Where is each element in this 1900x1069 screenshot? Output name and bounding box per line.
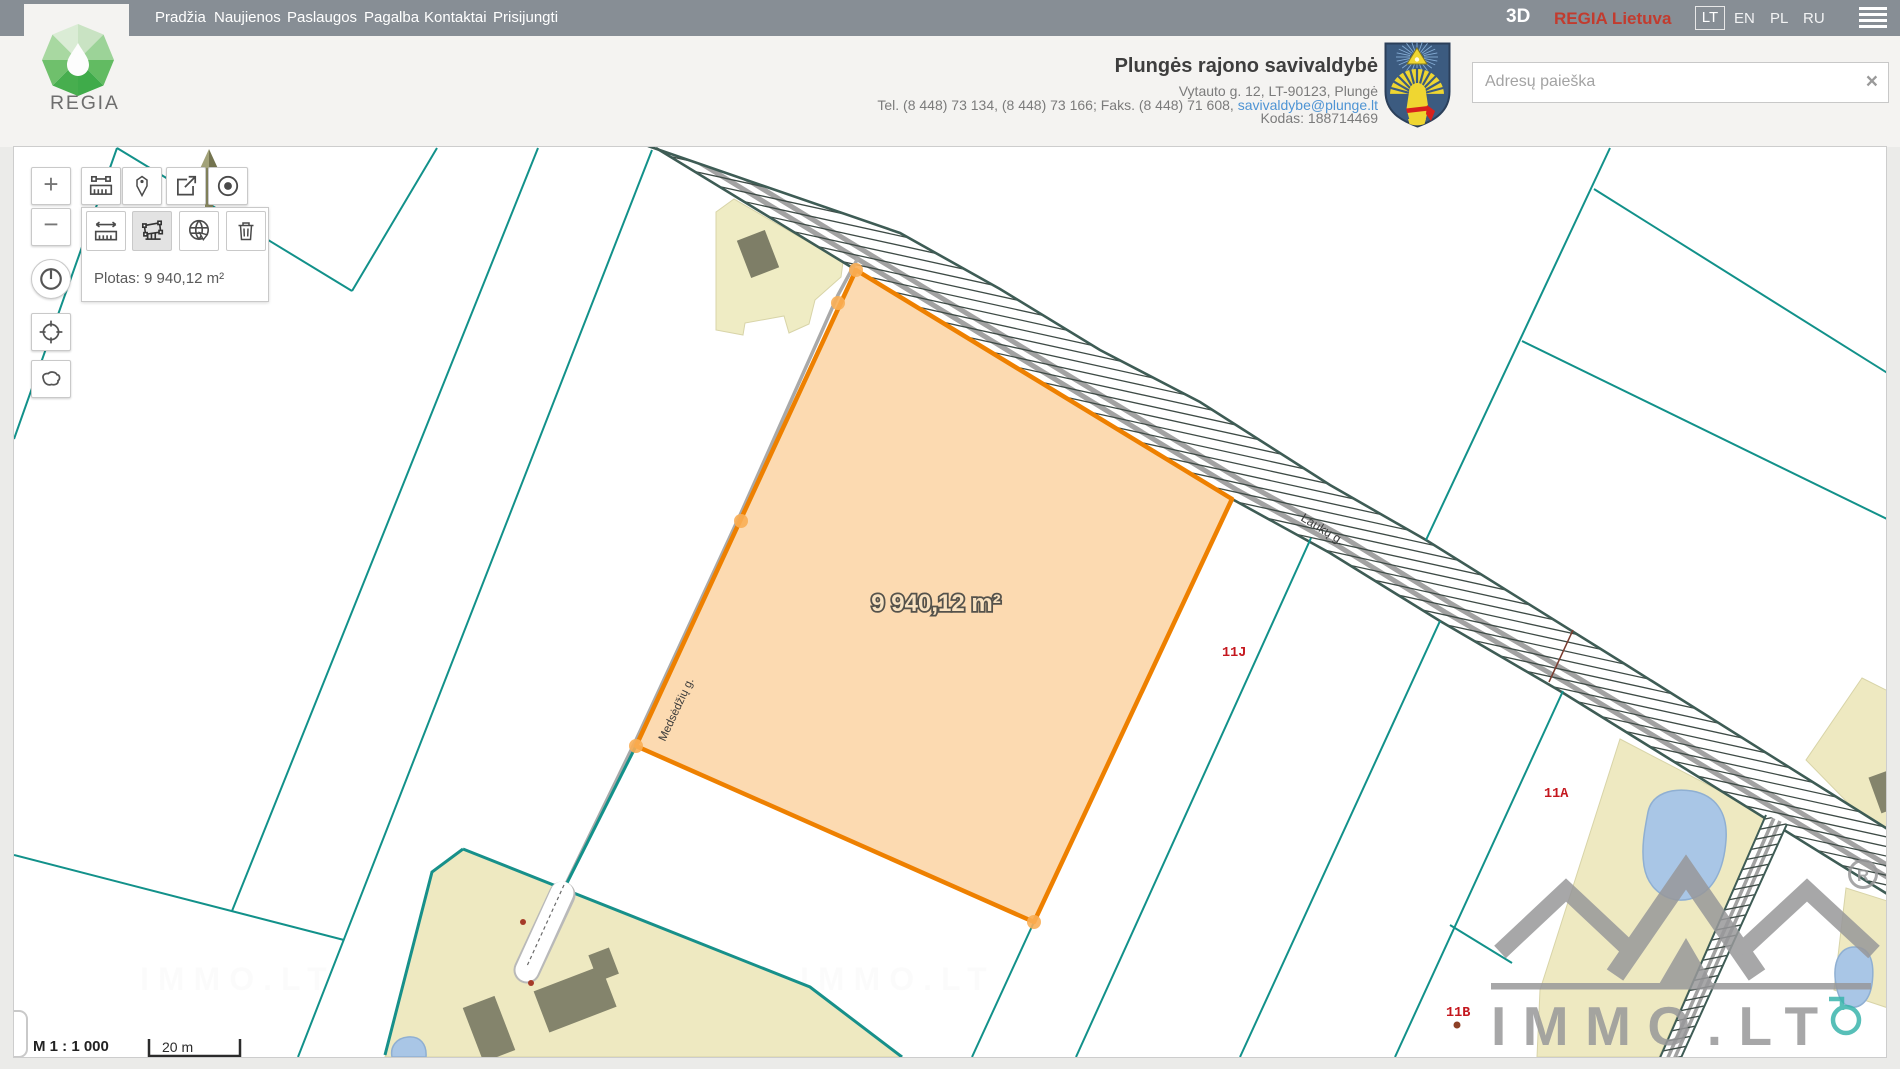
svg-text:9 940,12 m²: 9 940,12 m²: [871, 590, 1000, 617]
svg-text:IMMO.LT: IMMO.LT: [1491, 995, 1835, 1057]
svg-text:11A: 11A: [1544, 787, 1569, 802]
svg-text:R: R: [1857, 866, 1869, 885]
svg-text:11B: 11B: [1446, 1006, 1470, 1021]
svg-text:M 1 : 1 000: M 1 : 1 000: [33, 1038, 109, 1055]
svg-text:IMMO.LT: IMMO.LT: [140, 961, 336, 997]
svg-text:REGIA: REGIA: [50, 92, 120, 114]
svg-text:20 m: 20 m: [162, 1039, 193, 1055]
svg-text:IMMO.LT: IMMO.LT: [800, 961, 996, 997]
svg-text:11J: 11J: [1222, 646, 1246, 661]
